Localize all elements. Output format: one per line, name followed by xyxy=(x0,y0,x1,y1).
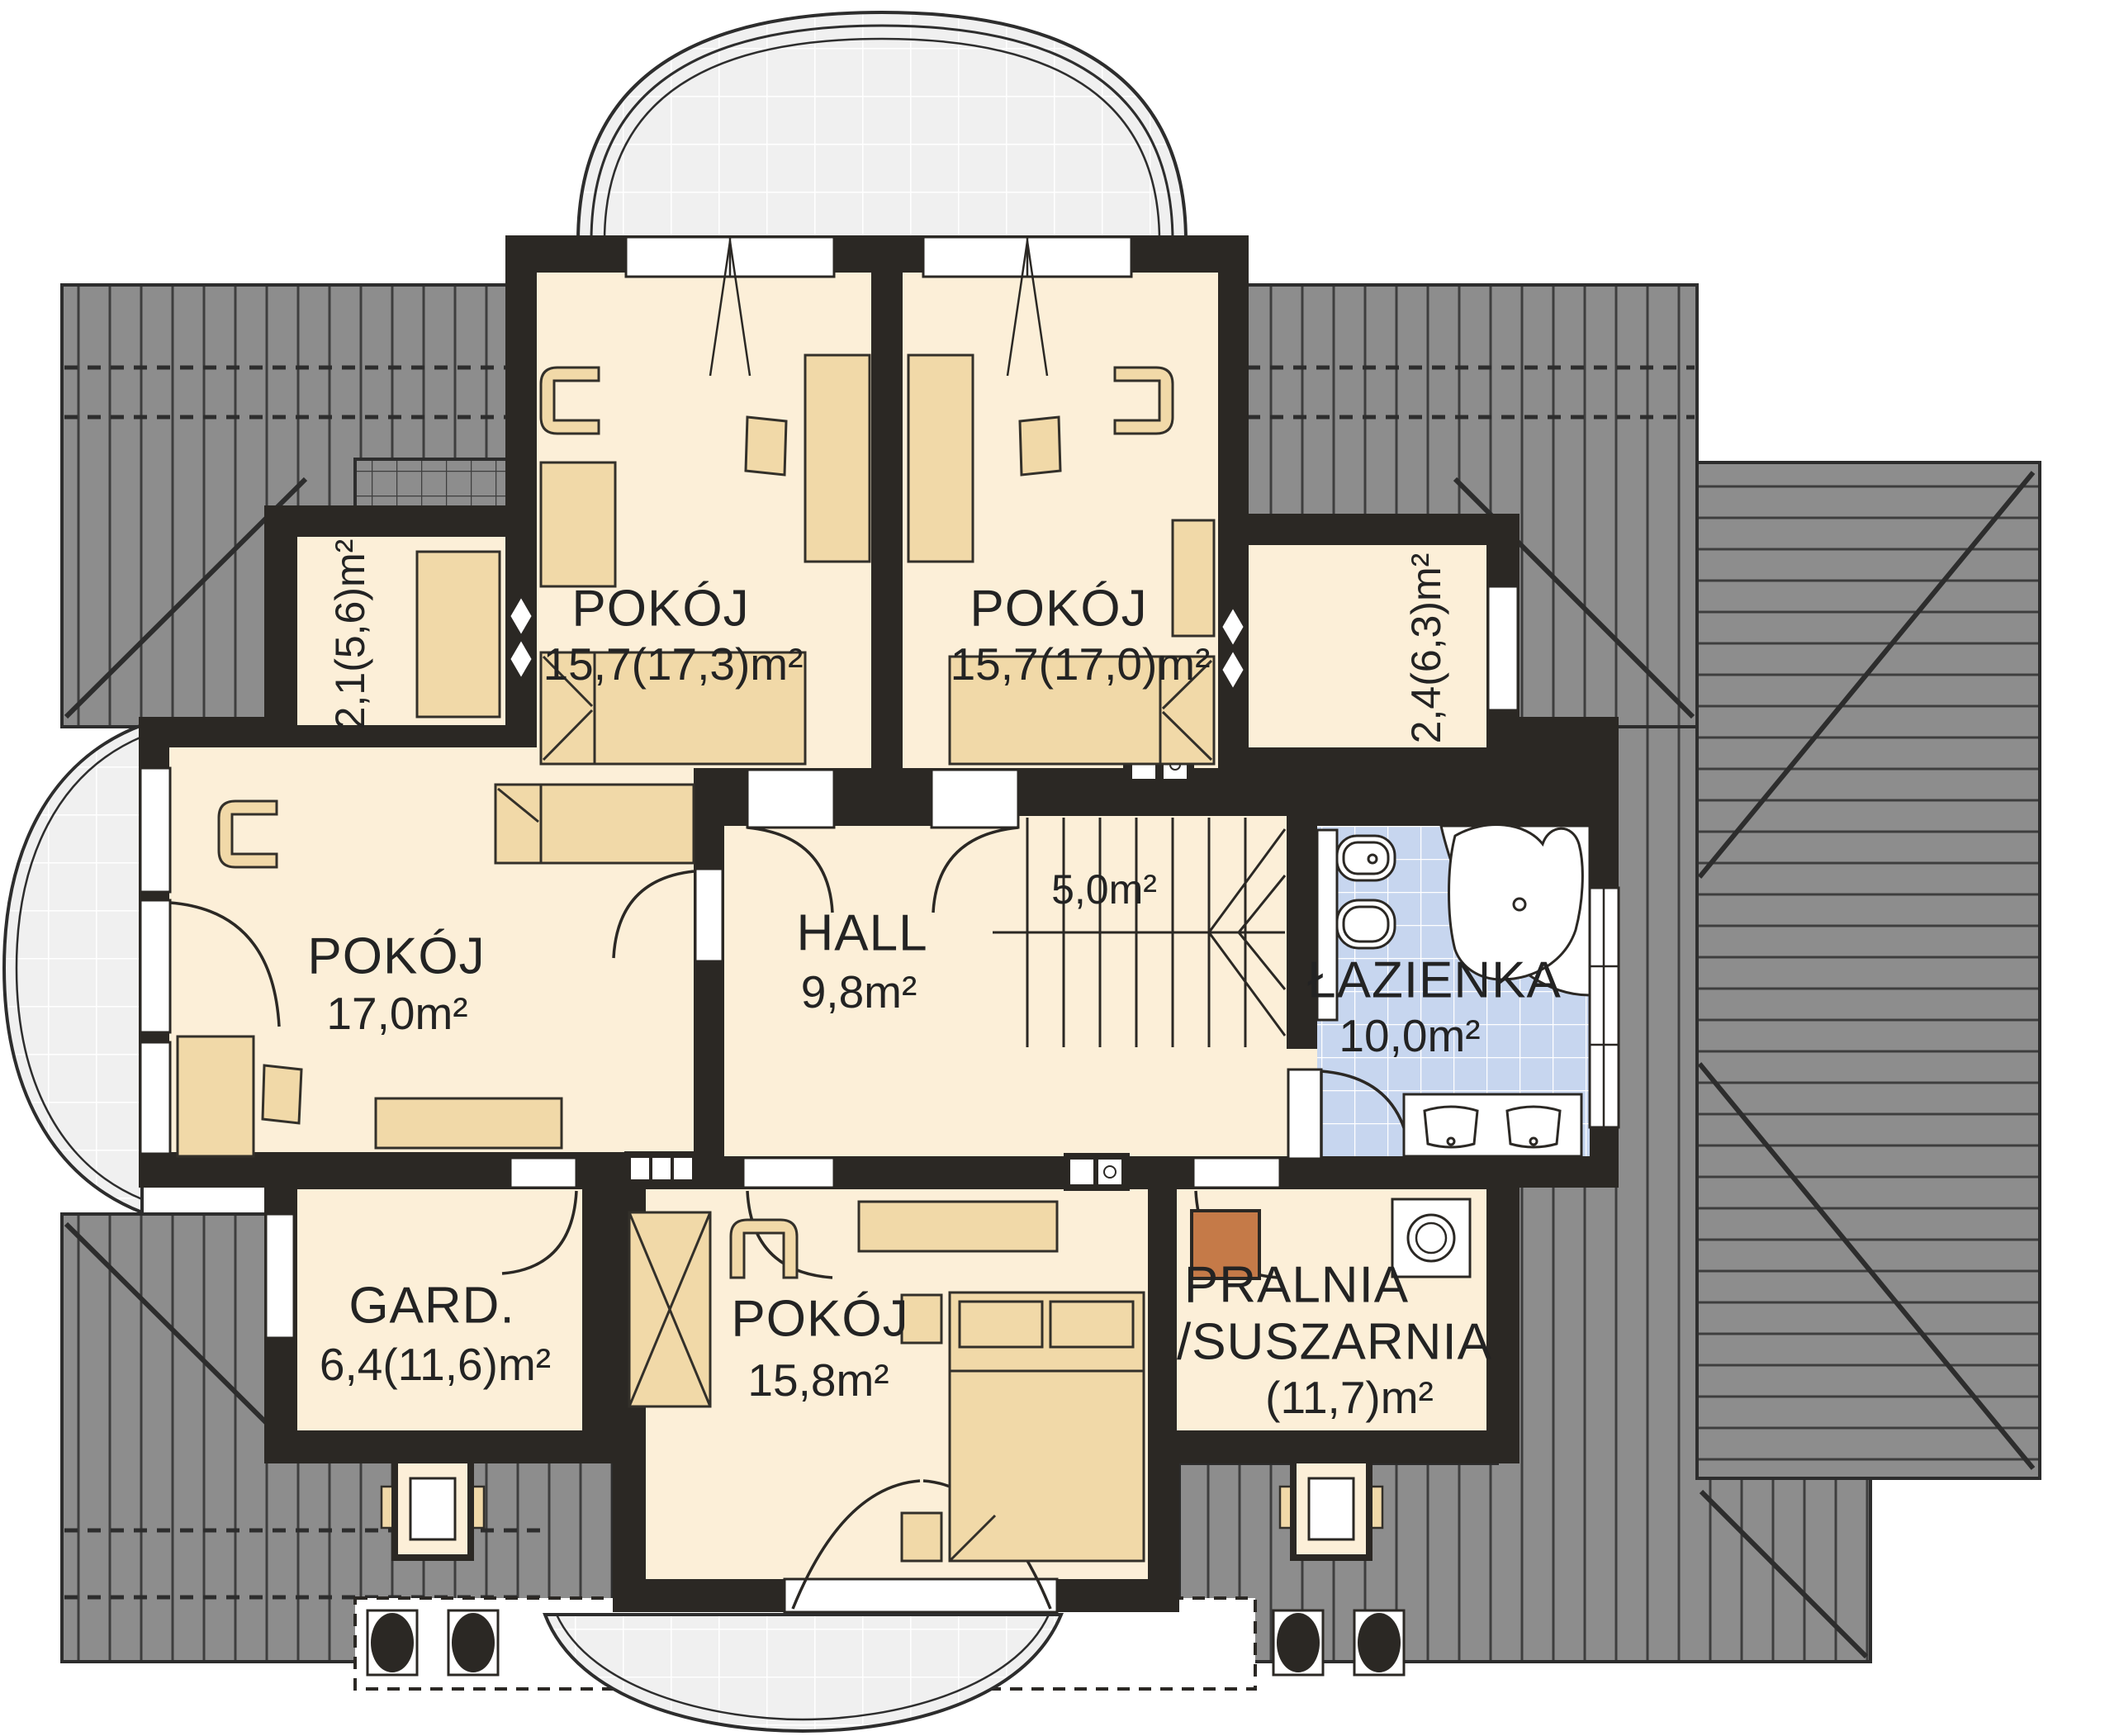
room-label-bedroom-left-area: 17,0m² xyxy=(326,990,467,1038)
desk-chair xyxy=(263,1065,301,1123)
room-label-bedroom-left-name: POKÓJ xyxy=(307,929,485,983)
desk xyxy=(908,355,973,562)
bottom-balcony xyxy=(545,1615,1061,1731)
wardrobe-cabinet xyxy=(417,552,500,717)
column xyxy=(452,1613,495,1672)
desk-chair xyxy=(1020,417,1060,475)
room-label-bedroom-top-right-area: 15,7(17,0)m² xyxy=(951,641,1211,689)
floor-niche-right xyxy=(1249,545,1486,747)
window-left-1 xyxy=(140,768,170,892)
door-terrace-double xyxy=(785,1579,1057,1612)
left-balcony xyxy=(4,725,142,1212)
room-label-laundry-name-2: /SUSZARNIA xyxy=(1177,1315,1492,1368)
column xyxy=(1277,1613,1320,1672)
dresser xyxy=(859,1202,1057,1251)
floor-corridor xyxy=(991,1049,1317,1156)
window-niche-right xyxy=(1488,586,1518,710)
door-bedroom-left xyxy=(695,869,723,961)
room-label-hall-name: HALL xyxy=(796,906,927,960)
sink xyxy=(1425,1107,1477,1147)
room-label-laundry-area: (11,7)m² xyxy=(1265,1374,1434,1422)
room-label-bedroom-top-left-area: 15,7(17,3)m² xyxy=(543,641,804,689)
dresser xyxy=(541,462,615,586)
door-bedroom-tr xyxy=(932,770,1018,828)
door-bedroom-bottom xyxy=(743,1158,834,1188)
door-laundry xyxy=(1193,1158,1280,1188)
floor-plan: POKÓJ 15,7(17,3)m² POKÓJ 15,7(17,0)m² PO… xyxy=(0,0,2105,1736)
window-left-2 xyxy=(140,1042,170,1154)
roof-extension-right xyxy=(1697,462,2040,1478)
room-label-wardrobe-name: GARD. xyxy=(348,1278,514,1332)
door-bedroom-tl xyxy=(747,770,834,828)
door-left-balcony xyxy=(140,900,170,1032)
room-label-bedroom-bottom-name: POKÓJ xyxy=(731,1292,908,1345)
desk xyxy=(805,355,870,562)
dresser xyxy=(376,1098,562,1148)
window-wardrobe xyxy=(266,1214,294,1338)
desk-chair xyxy=(746,417,786,475)
room-label-stairs-area: 5,0m² xyxy=(1051,868,1157,912)
column xyxy=(1358,1613,1401,1672)
desk xyxy=(178,1036,254,1156)
room-label-bedroom-top-left-name: POKÓJ xyxy=(571,581,749,635)
nightstand xyxy=(902,1513,941,1561)
room-label-bedroom-bottom-area: 15,8m² xyxy=(747,1357,889,1405)
door-wardrobe xyxy=(510,1158,576,1188)
room-label-laundry-name-1: PRALNIA xyxy=(1184,1258,1409,1311)
room-label-bedroom-top-right-name: POKÓJ xyxy=(970,581,1147,635)
room-label-wardrobe-area: 6,4(11,6)m² xyxy=(320,1341,551,1389)
room-label-niche-right-area: 2,4(6,3)m² xyxy=(1405,553,1448,744)
room-label-bathroom-name: ŁAZIENKA xyxy=(1307,953,1562,1007)
door-bathroom xyxy=(1288,1070,1321,1159)
room-label-hall-area: 9,8m² xyxy=(801,969,917,1017)
sink xyxy=(1507,1107,1560,1147)
column xyxy=(371,1613,414,1672)
arched-balcony xyxy=(578,12,1186,241)
bed xyxy=(495,785,694,863)
room-label-bathroom-area: 10,0m² xyxy=(1339,1013,1480,1060)
room-label-niche-left-area: 2,1(5,6)m² xyxy=(329,539,372,730)
side-table xyxy=(1173,520,1214,636)
